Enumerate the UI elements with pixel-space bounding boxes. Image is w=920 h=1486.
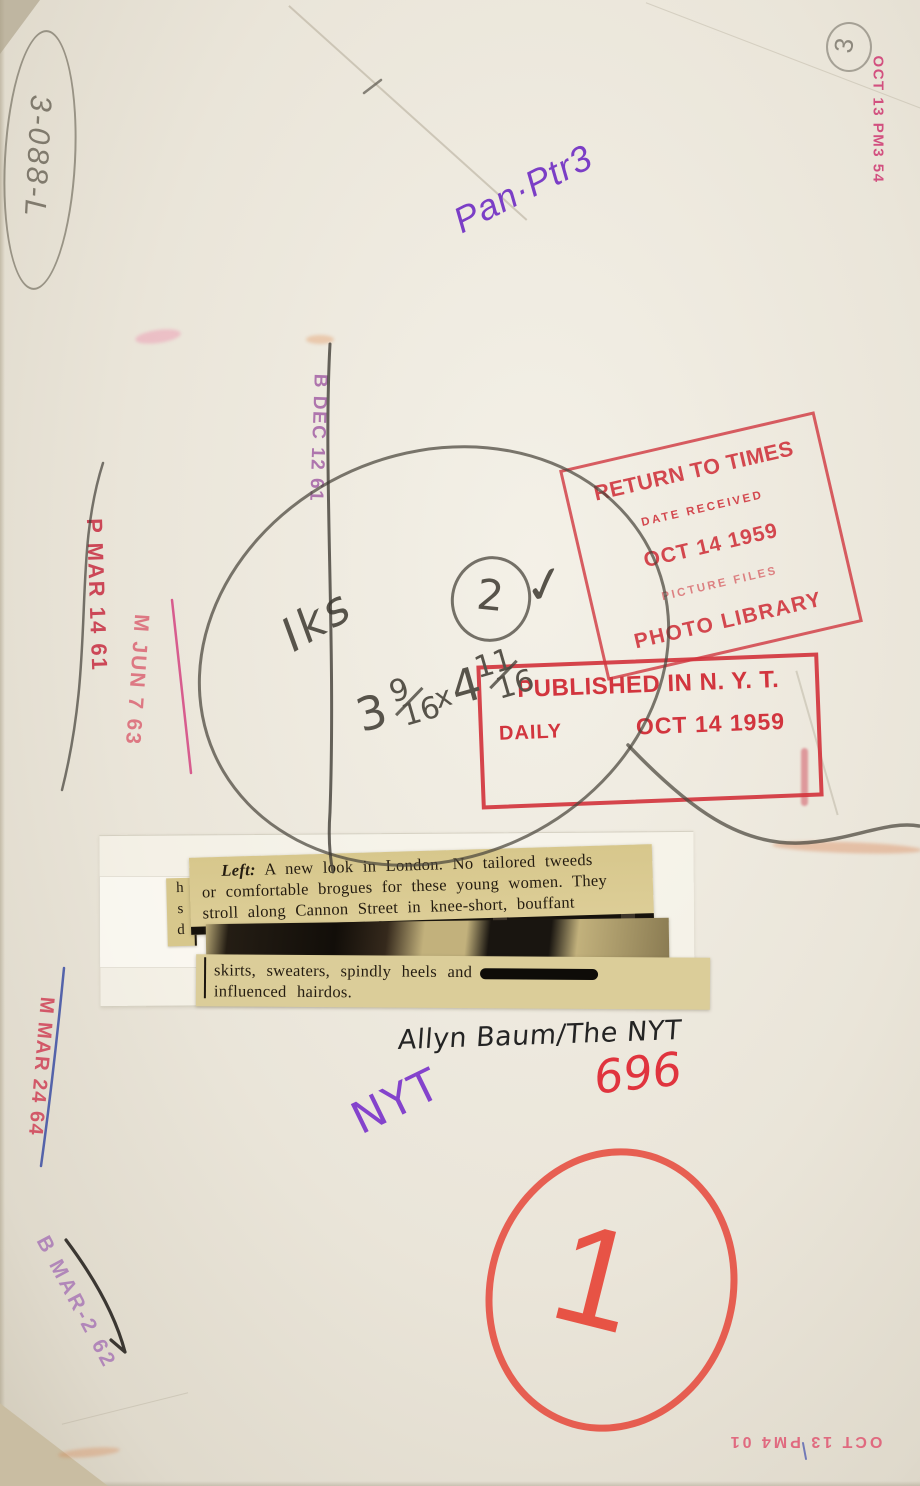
date-stamp-b-mar: B MAR-2 62 [31,1232,121,1373]
caption-lead: Left: [221,860,256,880]
paper-edge-shadow [0,0,5,1486]
published-date: OCT 14 1959 [635,708,785,741]
nyt-initials: NYT [344,1058,450,1144]
paper-edge-shadow [0,1481,920,1486]
redaction-bar [480,968,598,980]
clipping-strip-top: Left: A new look in London. No tailored … [189,844,654,935]
photo-verso: 3-088-L 3 OCT 13 PM3 54 OCT 13 PM4 01 Pa… [0,0,920,1486]
return-to-times-stamp: RETURN TO TIMES DATE RECEIVED OCT 14 195… [559,411,863,680]
stamp-library-line: PHOTO LIBRARY [632,588,825,655]
paper-crease [62,1392,188,1425]
stamp-date-received: OCT 14 1959 [642,519,781,573]
stamp-subtitle: DATE RECEIVED [640,489,764,529]
pencil-note-iks: Iks [271,578,362,662]
timestamp-stamp-top-right: OCT 13 PM3 54 [870,40,887,200]
orange-smudge [58,1445,121,1459]
date-stamp-p-mar: P MAR 14 61 [79,472,114,718]
pink-cross-out-mjun [172,600,191,773]
date-stamp-m-jun: M JUN 7 63 [117,567,157,793]
orange-smudge [772,839,920,855]
circled-three-value: 3 [828,36,861,56]
pencil-circled-three: 3 [826,22,872,72]
date-stamp-m-mar: M MAR 24 64 [20,958,62,1174]
published-title: PUBLISHED IN N. Y. T. [491,665,806,705]
circled-two-value: 2 [474,569,506,621]
clipping-strip-bottom: skirts, sweaters, spindly heels and infl… [196,954,710,1010]
caption-line-5: influenced hairdos. [214,980,702,1004]
paper-corner-fold [0,1396,108,1486]
pencil-dash [364,80,381,93]
published-edition: DAILY [499,720,563,745]
orange-smudge [306,335,334,344]
routing-note: Pan·Ptr3 [447,136,600,242]
negative-number: 696 [593,1041,682,1105]
stamp-files-line: PICTURE FILES [660,564,778,602]
stamp-title: RETURN TO TIMES [592,436,797,506]
red-circled-number: 1 [537,1189,653,1367]
timestamp-stamp-bottom: OCT 13 PM4 01 [694,1432,916,1450]
date-stamp-b-dec: B DEC 12 61 [303,345,331,531]
pink-smudge [134,327,181,346]
